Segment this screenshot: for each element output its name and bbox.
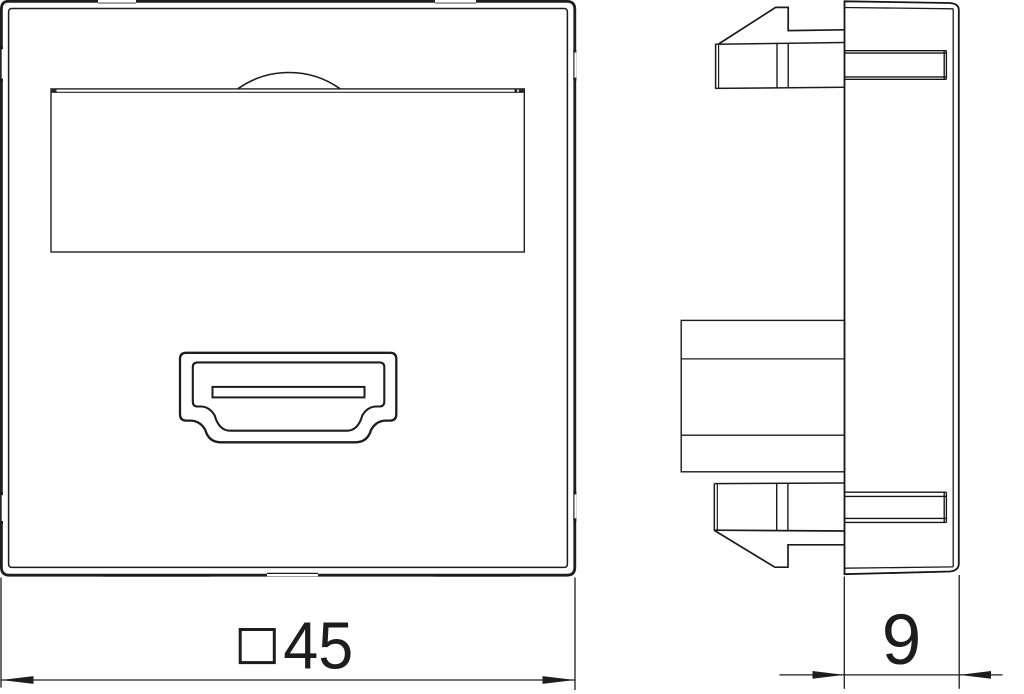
svg-text:45: 45 [283, 610, 353, 684]
svg-text:9: 9 [882, 601, 922, 680]
